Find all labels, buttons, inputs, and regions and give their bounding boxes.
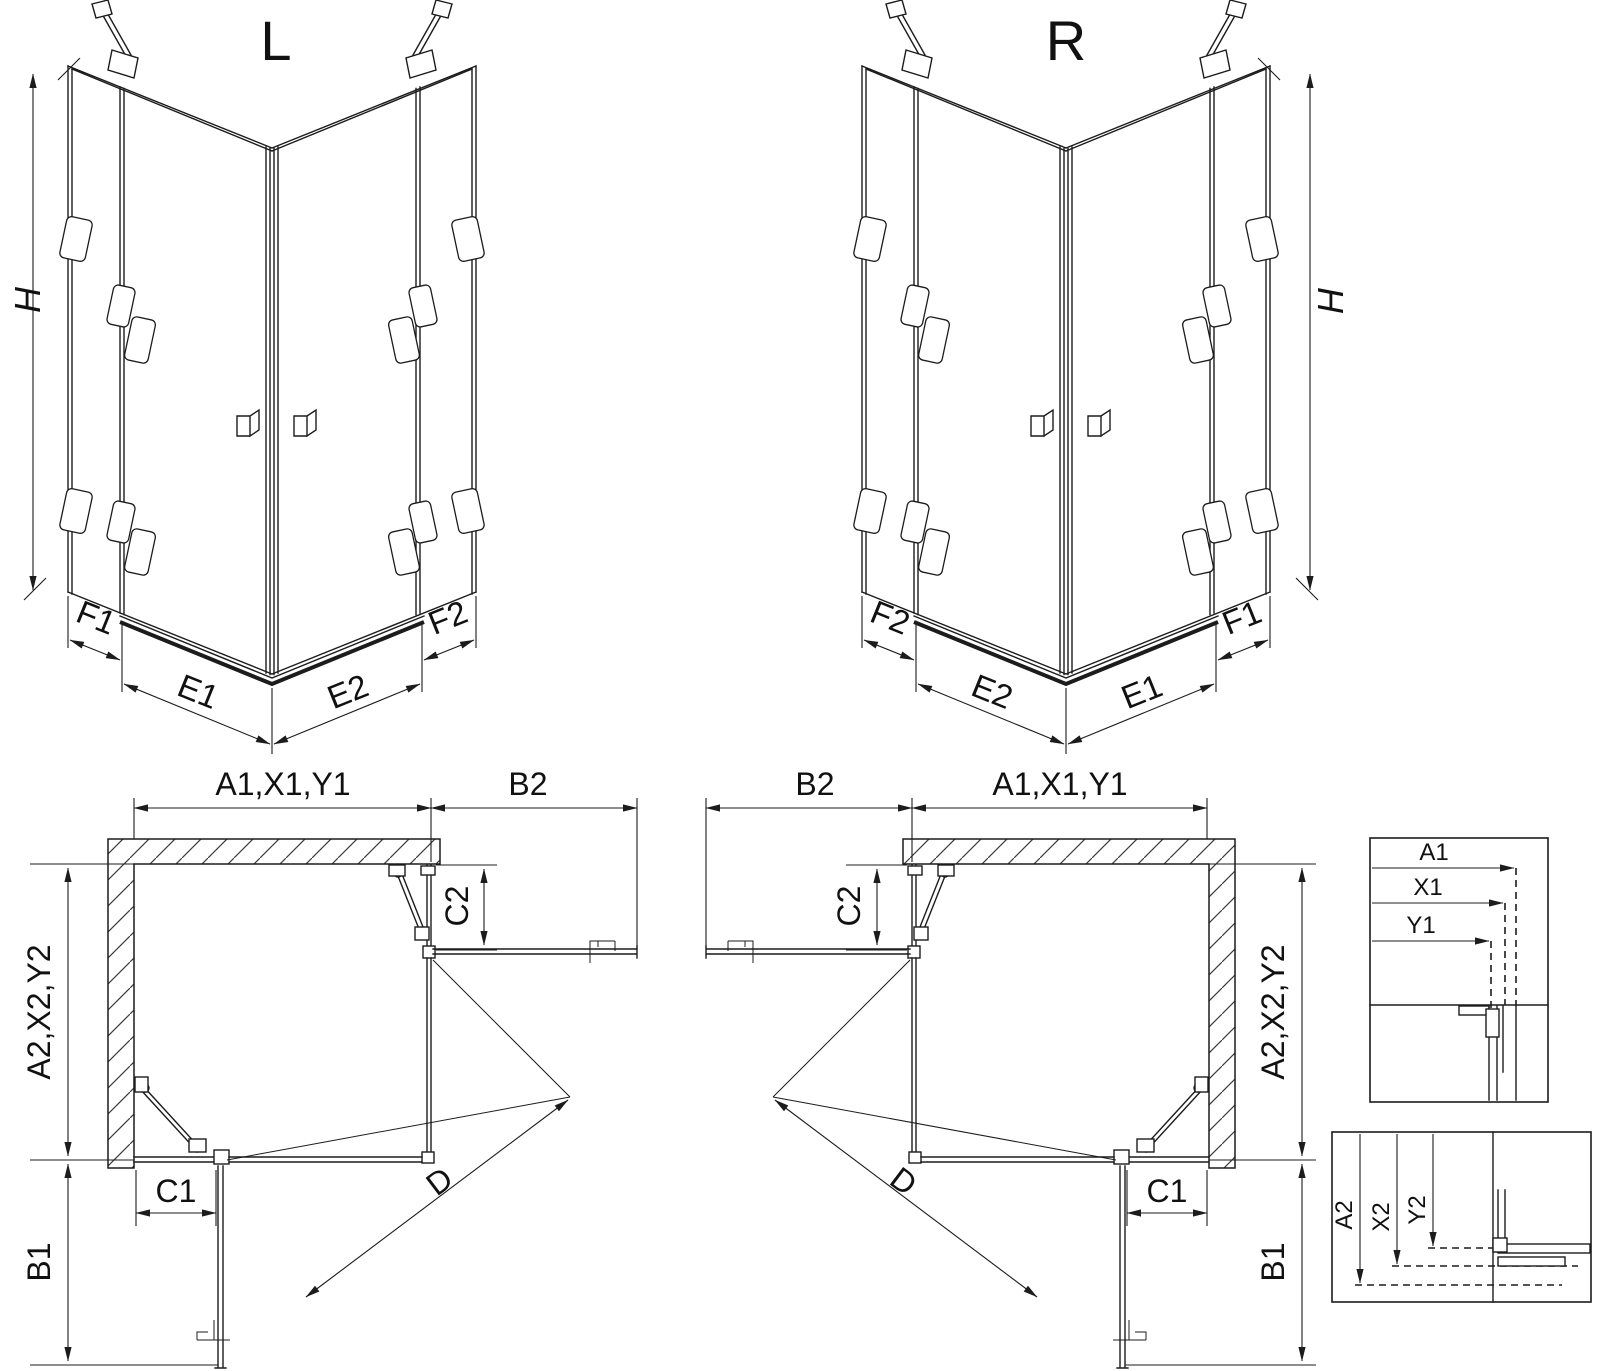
dim-label-c1-right: C1: [1147, 1173, 1188, 1209]
dim-label-d-right: D: [884, 1160, 924, 1203]
dim-label-c2-left: C2: [439, 886, 475, 927]
dim-label-a2x2y2-left: A2,X2,Y2: [21, 944, 57, 1079]
detail-label-x1: X1: [1413, 874, 1442, 901]
dim-label-b2-right: B2: [795, 766, 834, 802]
dim-label-h-left: H: [7, 286, 48, 313]
detail-label-y2: Y2: [1404, 1195, 1431, 1224]
dim-label-b1-left: B1: [21, 1242, 57, 1281]
detail-label-y1: Y1: [1406, 912, 1435, 939]
dim-label-f2-right: F2: [866, 593, 916, 642]
profile-section-widths: [1459, 1005, 1516, 1100]
detail-box-depths: A2 X2 Y2: [1331, 1132, 1591, 1302]
plan-view-right: B2 A1,X1,Y1 C2 A2,X2,Y2 B1 C1 D: [706, 766, 1316, 1368]
view-title-right: R: [1046, 9, 1086, 72]
dim-label-e2-left: E2: [322, 667, 373, 716]
iso-left-dimensions: H F1 E1 E2 F2: [7, 58, 476, 754]
dim-label-a1x1y1-right: A1,X1,Y1: [992, 766, 1127, 802]
glass-panels-left: [68, 66, 476, 675]
door-handles-left: [237, 410, 316, 436]
shower-enclosure-technical-drawing: L: [0, 0, 1600, 1371]
view-title-left: L: [260, 9, 291, 72]
detail-label-x2: X2: [1368, 1202, 1395, 1231]
detail-label-a1: A1: [1419, 839, 1448, 866]
detail-label-a2: A2: [1331, 1200, 1358, 1229]
glass-panels-right: [862, 66, 1270, 675]
dim-label-f1-right: F1: [1217, 593, 1267, 642]
hinges-left: [59, 216, 485, 576]
dim-label-e1-right: E1: [1116, 667, 1167, 716]
iso-view-left: L: [7, 0, 485, 754]
dim-label-f1-left: F1: [72, 593, 122, 642]
dim-label-e2-right: E2: [967, 667, 1018, 716]
iso-view-right: R: [853, 0, 1351, 754]
iso-right-dimensions: H F2 E2 E1 F1: [862, 58, 1351, 754]
dim-label-e1-left: E1: [173, 667, 224, 716]
wall-right-plan: [903, 839, 1235, 1168]
dim-label-d-left: D: [419, 1160, 459, 1203]
glass-right-plan: [706, 865, 1209, 1368]
wall-left-plan: [108, 839, 440, 1168]
hinges-right: [853, 216, 1279, 576]
dim-label-a1x1y1-left: A1,X1,Y1: [215, 766, 350, 802]
dim-label-c1-left: C1: [156, 1173, 197, 1209]
dim-label-b1-right: B1: [1255, 1242, 1291, 1281]
dim-label-b2-left: B2: [508, 766, 547, 802]
detail-box-widths: A1 X1 Y1: [1370, 838, 1548, 1102]
door-handles-right: [1031, 410, 1110, 436]
profile-section-depths: [1493, 1190, 1590, 1266]
plan-view-left: A1,X1,Y1 B2 C2 A2,X2,Y2 B1 C1 D: [21, 766, 637, 1368]
dim-label-a2x2y2-right: A2,X2,Y2: [1255, 944, 1291, 1079]
glass-left-plan: [134, 865, 637, 1368]
dim-label-c2-right: C2: [831, 886, 867, 927]
dim-label-f2-left: F2: [423, 593, 473, 642]
dim-label-h-right: H: [1310, 287, 1351, 314]
